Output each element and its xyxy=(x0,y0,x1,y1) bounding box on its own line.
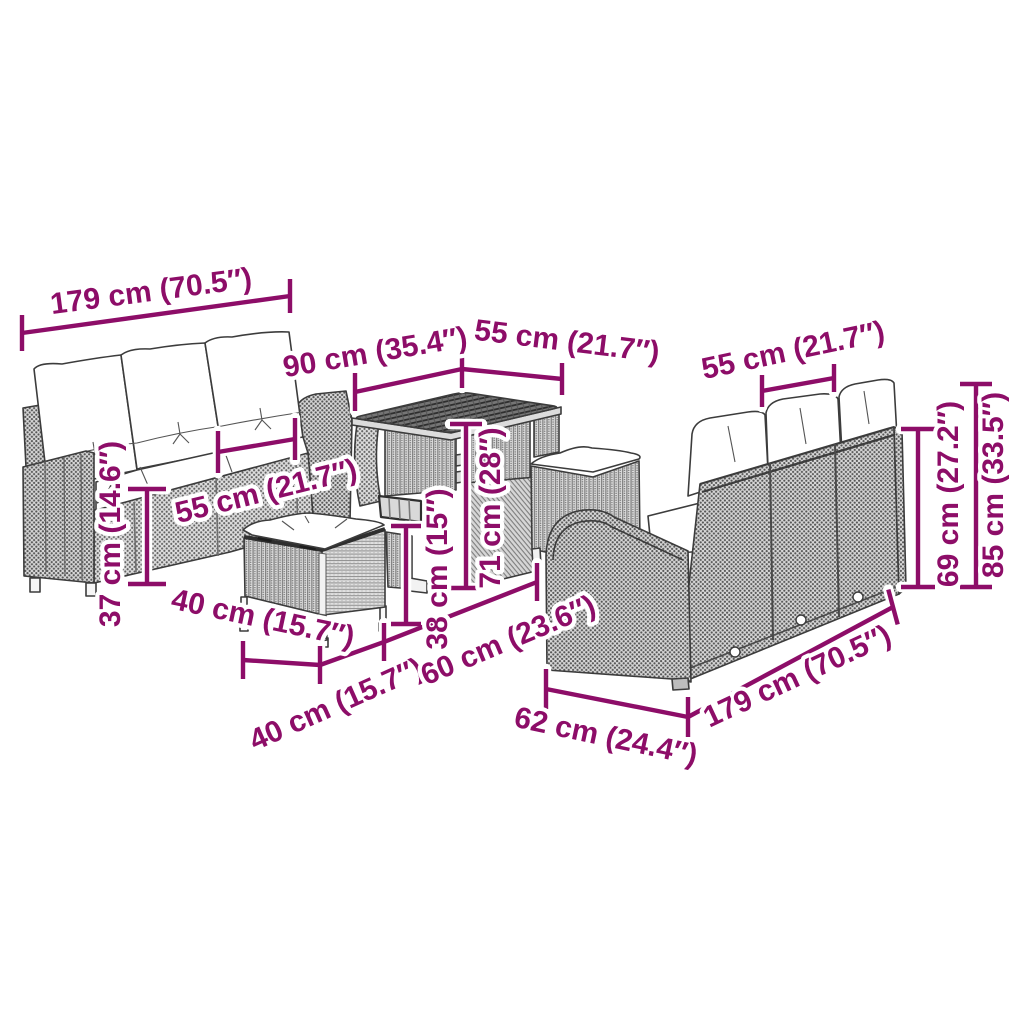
svg-text:71 cm (28″): 71 cm (28″) xyxy=(474,427,507,588)
svg-text:69 cm (27.2″): 69 cm (27.2″) xyxy=(932,401,965,587)
svg-text:38 cm (15″): 38 cm (15″) xyxy=(421,488,454,649)
svg-text:37 cm (14.6″): 37 cm (14.6″) xyxy=(94,441,127,627)
svg-text:85 cm (33.5″): 85 cm (33.5″) xyxy=(977,392,1010,578)
